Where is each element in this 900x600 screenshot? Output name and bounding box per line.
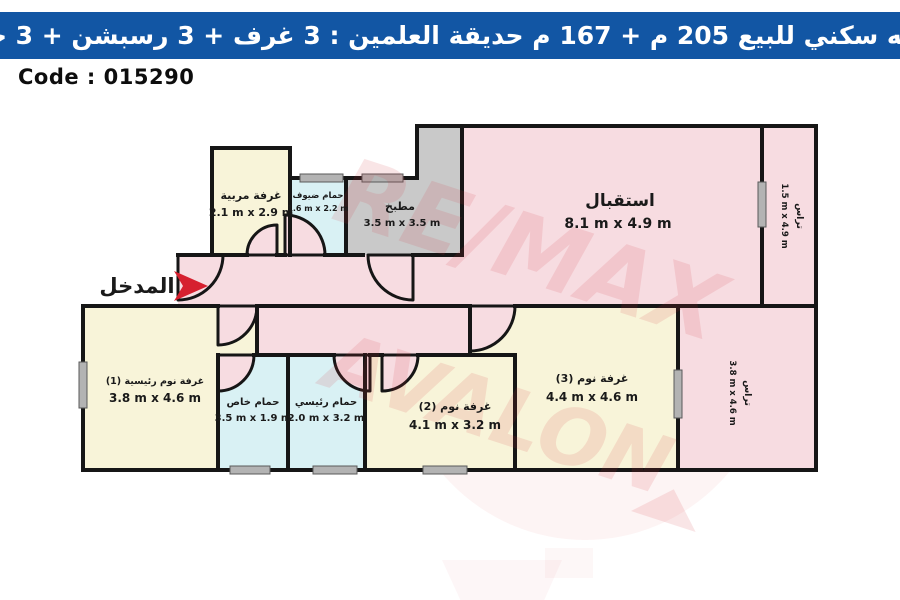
window-bedroom-2 [423, 466, 467, 474]
main-bath-dims: 2.0 m x 3.2 m [288, 413, 365, 424]
nanny-room-name: غرفة مربية [220, 189, 281, 202]
floor-plan: RE/MAX AVALON المدخل استقبال 8.1 m x 4.9… [40, 110, 840, 600]
private-bath-dims: 3.5 m x 1.9 m [215, 413, 292, 424]
terrace-bottom-name: تراس [742, 380, 753, 406]
reception-dims: 8.1 m x 4.9 m [564, 216, 671, 232]
floor-plan-svg: RE/MAX AVALON المدخل استقبال 8.1 m x 4.9… [40, 110, 840, 600]
window-bedroom-3 [674, 370, 682, 418]
bedroom-3-dims: 4.4 m x 4.6 m [546, 390, 638, 404]
bedroom-3-name: غرفة نوم (3) [556, 372, 629, 385]
guest-bath-name: حمام ضيوف [292, 191, 343, 201]
terrace-top-name: تراس [794, 203, 805, 229]
terrace-top-dims: 1.5 m x 4.9 m [779, 183, 789, 248]
kitchen-dims: 3.5 m x 3.5 m [364, 218, 441, 229]
window-main-bath [313, 466, 357, 474]
window-terrace-top [758, 182, 766, 227]
window-guest-bath [300, 174, 343, 182]
main-bath-name: حمام رئيسي [295, 397, 357, 408]
window-private-bath [230, 466, 270, 474]
master-bedroom-dims: 3.8 m x 4.6 m [109, 391, 201, 405]
header-bar: شاليه سكني للبيع 205 م + 167 م حديقة الع… [0, 12, 900, 59]
window-master-bedroom [79, 362, 87, 408]
guest-bath-dims: 1.6 m x 2.2 m [287, 204, 348, 213]
private-bath-name: حمام خاص [227, 397, 280, 408]
bedroom-2-name: غرفة نوم (2) [419, 400, 492, 413]
entrance-label: المدخل [99, 274, 174, 298]
listing-title: شاليه سكني للبيع 205 م + 167 م حديقة الع… [0, 21, 900, 50]
bedroom-2-dims: 4.1 m x 3.2 m [409, 418, 501, 432]
listing-code: Code : 015290 [18, 65, 194, 89]
kitchen-name: مطبخ [385, 200, 415, 213]
reception-name: استقبال [585, 191, 655, 211]
master-bedroom-name: غرفة نوم رئيسية (1) [106, 376, 204, 387]
terrace-bottom-dims: 3.8 m x 4.6 m [727, 360, 737, 425]
nanny-room-dims: 2.1 m x 2.9 m [209, 206, 293, 219]
